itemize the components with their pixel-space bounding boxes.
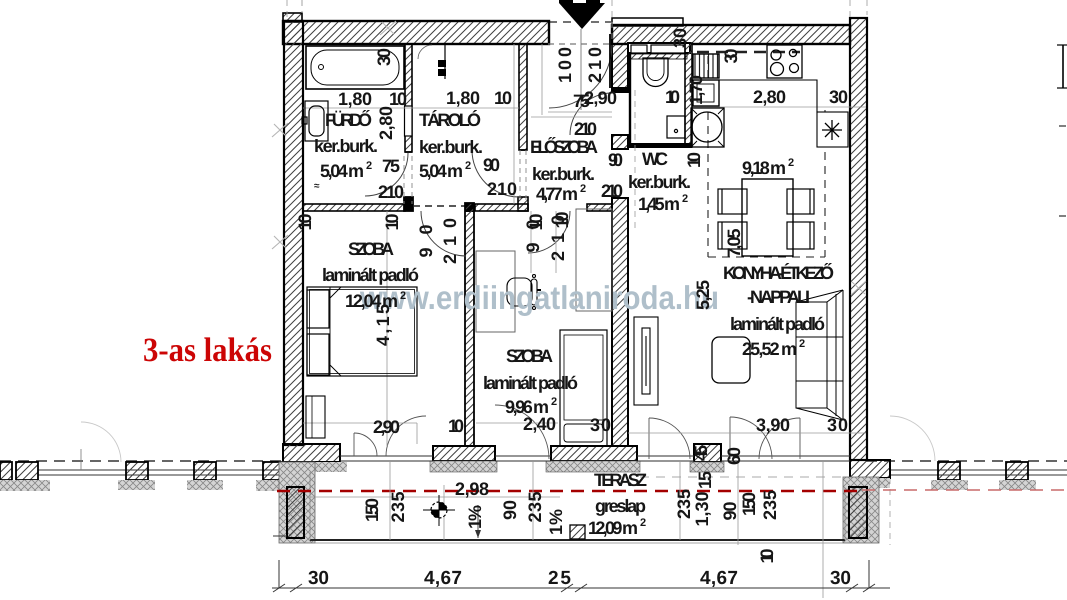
svg-text:laminált padló: laminált padló [483,373,578,393]
svg-text:30: 30 [829,87,848,107]
svg-text:235: 235 [388,492,408,523]
svg-text:10: 10 [552,212,572,229]
svg-text:2,90: 2,90 [373,417,400,437]
svg-text:2: 2 [580,183,586,195]
svg-text:2: 2 [366,160,372,172]
svg-text:laminált padló: laminált padló [730,314,825,334]
svg-text:≈: ≈ [314,181,320,192]
svg-text:210: 210 [487,179,517,199]
svg-text:1,30: 1,30 [692,492,712,527]
svg-text:9,18 m: 9,18 m [742,158,786,178]
svg-text:30: 30 [830,568,851,589]
svg-text:210: 210 [440,218,460,264]
svg-text:laminált padló: laminált padló [322,265,419,285]
svg-text:4,67: 4,67 [424,568,462,589]
svg-text:FÜRDŐ: FÜRDŐ [325,110,372,130]
svg-text:150: 150 [739,492,759,516]
svg-text:ker.burk.: ker.burk. [314,136,378,156]
svg-text:1,80: 1,80 [446,88,480,108]
svg-text:75: 75 [382,156,400,176]
svg-text:2,80: 2,80 [753,87,786,107]
svg-text:ker.burk.: ker.burk. [419,137,483,157]
svg-text:2: 2 [799,338,805,350]
svg-text:KONYHA-ÉTKEZŐ: KONYHA-ÉTKEZŐ [723,263,834,283]
svg-text:3-as lakás: 3-as lakás [143,332,272,369]
svg-text:ker.burk.: ker.burk. [628,172,691,192]
svg-text:7,05: 7,05 [724,229,744,258]
svg-text:4,67: 4,67 [700,568,738,589]
svg-text:2,80: 2,80 [376,106,396,140]
svg-text:210: 210 [574,119,597,139]
svg-text:235: 235 [760,490,780,520]
svg-text:SZOBA: SZOBA [506,346,553,366]
svg-text:SZOBA: SZOBA [348,239,394,259]
svg-text:10: 10 [389,89,407,109]
svg-text:10: 10 [757,549,777,564]
svg-text:10: 10 [295,214,315,231]
svg-text:5,04 m: 5,04 m [419,161,463,181]
svg-text:5,04 m: 5,04 m [320,161,364,181]
svg-text:2: 2 [400,290,406,302]
svg-text:2: 2 [551,396,557,408]
svg-text:210: 210 [585,47,605,83]
svg-text:25,52 m: 25,52 m [742,339,797,359]
svg-text:5,25: 5,25 [693,280,713,310]
svg-text:10: 10 [526,214,546,231]
svg-text:TERASZ: TERASZ [594,470,647,490]
svg-text:10: 10 [382,214,402,231]
svg-text:100: 100 [555,47,575,83]
svg-text:45: 45 [691,445,711,461]
svg-text:1,70: 1,70 [686,75,706,105]
svg-text:10: 10 [494,88,512,108]
svg-text:2: 2 [465,160,471,172]
svg-text:2: 2 [640,517,646,529]
svg-text:2,98: 2,98 [455,479,489,499]
svg-text:-NAPPALI: -NAPPALI [747,287,810,307]
svg-text:10: 10 [665,87,680,107]
svg-text:30: 30 [590,415,611,435]
svg-text:3,90: 3,90 [756,415,790,435]
svg-text:TÁROLÓ: TÁROLÓ [419,110,481,130]
svg-text:2,90: 2,90 [584,88,617,108]
svg-text:1,45 m: 1,45 m [638,194,680,214]
svg-text:30: 30 [308,568,329,589]
svg-text:1%: 1% [465,505,485,529]
svg-text:60: 60 [724,447,744,465]
svg-text:30: 30 [374,48,394,66]
svg-text:greslap: greslap [595,496,646,516]
svg-text:90: 90 [500,500,520,520]
svg-text:4,15: 4,15 [373,304,393,346]
svg-text:ELŐSZOBA: ELŐSZOBA [530,137,598,157]
svg-text:1%: 1% [546,509,566,535]
svg-text:235: 235 [525,492,545,523]
svg-text:1,80: 1,80 [338,89,372,109]
svg-text:10: 10 [684,152,704,168]
svg-text:ker.burk.: ker.burk. [532,164,595,184]
svg-text:4,77 m: 4,77 m [536,184,578,204]
svg-text:235: 235 [674,489,694,519]
svg-text:150: 150 [362,498,382,522]
svg-text:2: 2 [788,157,794,169]
svg-text:15: 15 [695,471,715,489]
svg-text:90: 90 [720,502,740,521]
svg-text:90: 90 [608,150,623,170]
svg-text:2: 2 [682,193,688,205]
svg-text:90: 90 [483,155,500,175]
svg-text:WC: WC [642,149,668,169]
svg-text:25: 25 [548,568,571,589]
svg-text:2,40: 2,40 [523,414,556,434]
svg-text:210: 210 [378,182,404,202]
svg-text:30: 30 [721,49,741,64]
svg-text:10: 10 [448,416,464,436]
svg-text:12,09 m: 12,09 m [588,518,638,538]
svg-text:30: 30 [827,415,848,435]
svg-text:30: 30 [670,28,690,48]
svg-text:210: 210 [601,181,623,201]
